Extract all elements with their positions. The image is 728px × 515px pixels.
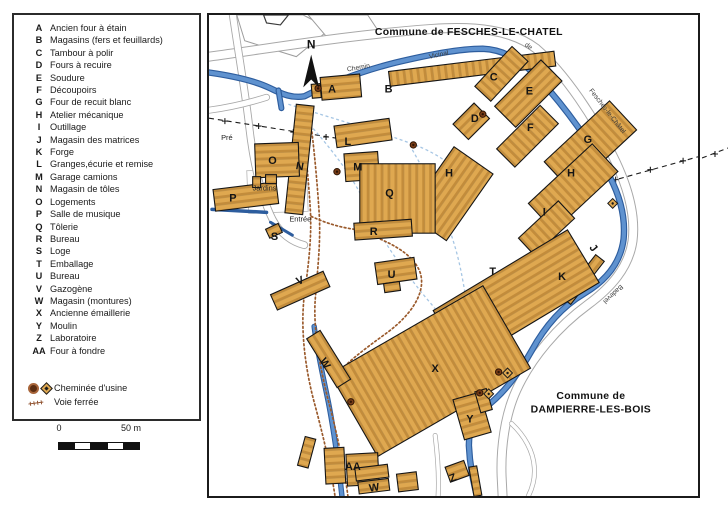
commune-top-label: Commune de FESCHES-LE-CHATEL	[375, 27, 563, 38]
building-label-X: X	[432, 363, 440, 375]
building-label-C: C	[490, 71, 498, 83]
legend-item-key: M	[28, 171, 50, 183]
building-label-J: J	[587, 242, 600, 254]
legend-item-label: Salle de musique	[50, 208, 195, 220]
chimney-diamond-icon	[40, 382, 53, 395]
building-label-H: H	[445, 168, 453, 180]
scale-end-label: 50 m	[115, 423, 147, 433]
legend-item-key: Y	[28, 320, 50, 332]
building-label-Y: Y	[466, 414, 474, 426]
legend-item-C: CTambour à polir	[28, 47, 195, 59]
legend-item-label: Bureau	[50, 270, 195, 282]
legend-item-N: NMagasin de tôles	[28, 183, 195, 195]
legend-item-key: H	[28, 109, 50, 121]
building-label-E: E	[526, 85, 533, 97]
legend-item-key: D	[28, 59, 50, 71]
road-label-Vicinal: Vicinal	[428, 50, 449, 61]
building-riverside-strip	[298, 436, 316, 468]
legend-item-Y: YMoulin	[28, 320, 195, 332]
legend-item-O: OLogements	[28, 196, 195, 208]
legend-item-key: G	[28, 96, 50, 108]
commune-bottom-label-2: DAMPIERRE-LES-BOIS	[531, 405, 651, 416]
building-L	[334, 118, 392, 147]
legend-item-label: Emballage	[50, 258, 195, 270]
legend-item-key: N	[28, 183, 50, 195]
legend-item-key: Q	[28, 221, 50, 233]
legend-item-G: GFour de recuit blanc	[28, 96, 195, 108]
legend-item-F: FDécoupoirs	[28, 84, 195, 96]
legend-item-A: AAncien four à étain	[28, 22, 195, 34]
chimney-icon	[410, 142, 416, 148]
legend-item-label: Atelier mécanique	[50, 109, 195, 121]
legend-item-label: Ancien four à étain	[50, 22, 195, 34]
legend-item-V: VGazogène	[28, 283, 195, 295]
building-label-D: D	[471, 113, 479, 125]
legend-item-key: U	[28, 270, 50, 282]
legend-item-key: K	[28, 146, 50, 158]
legend-item-X: XAncienne émaillerie	[28, 307, 195, 319]
area-label-Jardins: Jardins	[253, 184, 277, 193]
chimney-icons	[28, 383, 54, 394]
legend-item-key: T	[28, 258, 50, 270]
building-label-AA: AA	[345, 461, 361, 473]
area-label-Entrée: Entrée	[289, 214, 311, 223]
factory-site-map-figure: AAncien four à étainBMagasins (fers et f…	[0, 0, 728, 515]
north-label: N	[307, 38, 316, 52]
legend-item-label: Fours à recuire	[50, 59, 195, 71]
legend-item-S: SLoge	[28, 245, 195, 257]
legend-item-label: Loge	[50, 245, 195, 257]
area-label-Pré: Pré	[221, 133, 233, 142]
building-small-south	[396, 472, 418, 492]
chimney-icon	[348, 399, 354, 405]
chimney-label: Cheminée d'usine	[54, 383, 127, 393]
building-label-L: L	[345, 136, 352, 148]
legend-item-key: O	[28, 196, 50, 208]
legend-item-key: S	[28, 245, 50, 257]
legend-item-label: Laboratoire	[50, 332, 195, 344]
buildings	[213, 47, 637, 497]
building-AA-west	[324, 447, 346, 484]
legend-item-label: Outillage	[50, 121, 195, 133]
legend-item-label: Granges,écurie et remise	[50, 158, 195, 170]
building-label-R: R	[370, 226, 378, 238]
legend-item-key: V	[28, 283, 50, 295]
legend-item-label: Logements	[50, 196, 195, 208]
legend-item-key: W	[28, 295, 50, 307]
legend-item-label: Garage camions	[50, 171, 195, 183]
commune-bottom-label-1: Commune de	[556, 391, 625, 402]
legend-item-label: Gazogène	[50, 283, 195, 295]
building-label-U: U	[388, 269, 396, 281]
legend-item-label: Découpoirs	[50, 84, 195, 96]
building-label-H: H	[567, 168, 575, 180]
legend-item-I: IOutillage	[28, 121, 195, 133]
legend-item-label: Magasin de tôles	[50, 183, 195, 195]
legend-item-key: AA	[28, 345, 50, 357]
building-label-A: A	[328, 83, 336, 95]
building-R	[354, 219, 413, 240]
legend-item-AA: AAFour à fondre	[28, 345, 195, 357]
building-label-K: K	[558, 271, 566, 283]
legend-item-H: HAtelier mécanique	[28, 109, 195, 121]
legend-item-key: I	[28, 121, 50, 133]
legend-item-M: MGarage camions	[28, 171, 195, 183]
scale-bar: 0 50 m	[45, 423, 155, 455]
building-label-B: B	[385, 83, 393, 95]
building-label-Q: Q	[385, 187, 394, 199]
legend-item-label: Tambour à polir	[50, 47, 195, 59]
building-label-P: P	[229, 192, 236, 204]
legend-item-key: B	[28, 34, 50, 46]
legend-item-label: Tôlerie	[50, 221, 195, 233]
scale-bar-graphic	[58, 442, 140, 450]
building-label-T: T	[489, 266, 496, 278]
legend-item-key: P	[28, 208, 50, 220]
building-label-O: O	[268, 155, 277, 167]
garden-shed-2	[266, 175, 277, 184]
chimney-circle-icon	[28, 383, 39, 394]
building-label-M: M	[353, 162, 362, 174]
chimney-icon	[495, 369, 501, 375]
legend-railway-row: ++++ Voie ferrée	[28, 395, 127, 409]
legend-item-key: E	[28, 72, 50, 84]
legend-item-key: L	[28, 158, 50, 170]
building-label-G: G	[584, 134, 592, 146]
legend-item-label: Four de recuit blanc	[50, 96, 195, 108]
legend-panel: AAncien four à étainBMagasins (fers et f…	[12, 13, 201, 421]
legend-item-U: UBureau	[28, 270, 195, 282]
legend-item-E: ESoudure	[28, 72, 195, 84]
legend-item-key: R	[28, 233, 50, 245]
legend-item-key: F	[28, 84, 50, 96]
legend-item-T: TEmballage	[28, 258, 195, 270]
boundary-extension	[702, 138, 728, 168]
legend-item-L: LGranges,écurie et remise	[28, 158, 195, 170]
legend-item-label: Forge	[50, 146, 195, 158]
legend-symbols: Cheminée d'usine ++++ Voie ferrée	[28, 381, 127, 409]
building-label-I: I	[543, 206, 546, 218]
legend-item-J: JMagasin des matrices	[28, 134, 195, 146]
legend-item-key: Z	[28, 332, 50, 344]
legend-item-label: Four à fondre	[50, 345, 195, 357]
building-O	[255, 142, 300, 177]
legend-item-R: RBureau	[28, 233, 195, 245]
chimney-icon	[477, 390, 483, 396]
legend-item-key: X	[28, 307, 50, 319]
legend-item-K: KForge	[28, 146, 195, 158]
legend-item-label: Soudure	[50, 72, 195, 84]
legend-item-label: Magasin (montures)	[50, 295, 195, 307]
building-A	[320, 74, 362, 100]
legend-item-P: PSalle de musique	[28, 208, 195, 220]
building-U	[375, 257, 417, 284]
railway-label: Voie ferrée	[54, 397, 98, 407]
legend-item-Q: QTôlerie	[28, 221, 195, 233]
scale-zero-label: 0	[53, 423, 65, 433]
legend-list: AAncien four à étainBMagasins (fers et f…	[14, 15, 199, 357]
legend-item-label: Magasins (fers et feuillards)	[50, 34, 195, 46]
building-label-F: F	[527, 122, 534, 134]
chimney-icon	[480, 111, 486, 117]
legend-item-D: DFours à recuire	[28, 59, 195, 71]
legend-item-Z: ZLaboratoire	[28, 332, 195, 344]
legend-item-B: BMagasins (fers et feuillards)	[28, 34, 195, 46]
legend-item-key: J	[28, 134, 50, 146]
legend-item-label: Moulin	[50, 320, 195, 332]
legend-item-label: Magasin des matrices	[50, 134, 195, 146]
legend-item-key: A	[28, 22, 50, 34]
legend-item-label: Bureau	[50, 233, 195, 245]
site-map: N Commune de FESCHES-LE-CHATEL Commune d…	[207, 13, 700, 498]
building-pier	[469, 466, 482, 497]
legend-item-W: WMagasin (montures)	[28, 295, 195, 307]
building-U-annex	[384, 282, 401, 293]
railway-ticks-icon: ++++	[28, 396, 55, 409]
legend-item-key: C	[28, 47, 50, 59]
chimney-icon	[334, 169, 340, 175]
legend-item-label: Ancienne émaillerie	[50, 307, 195, 319]
legend-chimney-row: Cheminée d'usine	[28, 381, 127, 395]
building-label-S: S	[271, 231, 278, 243]
